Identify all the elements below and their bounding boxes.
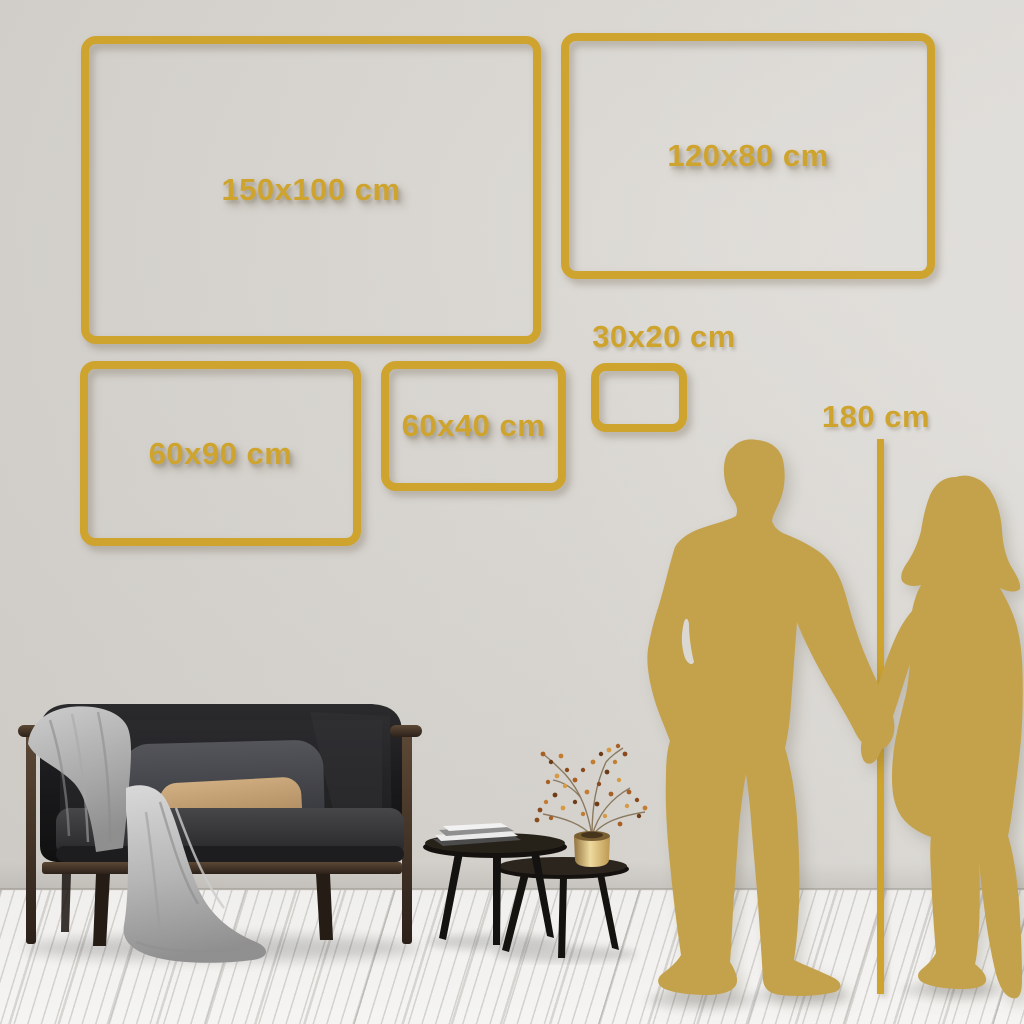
couple-silhouettes: [0, 0, 1024, 1024]
man-silhouette: [647, 439, 894, 996]
woman-silhouette: [861, 476, 1023, 999]
size-guide-canvas: 150x100 cm 120x80 cm 60x90 cm 60x40 cm 3…: [0, 0, 1024, 1024]
